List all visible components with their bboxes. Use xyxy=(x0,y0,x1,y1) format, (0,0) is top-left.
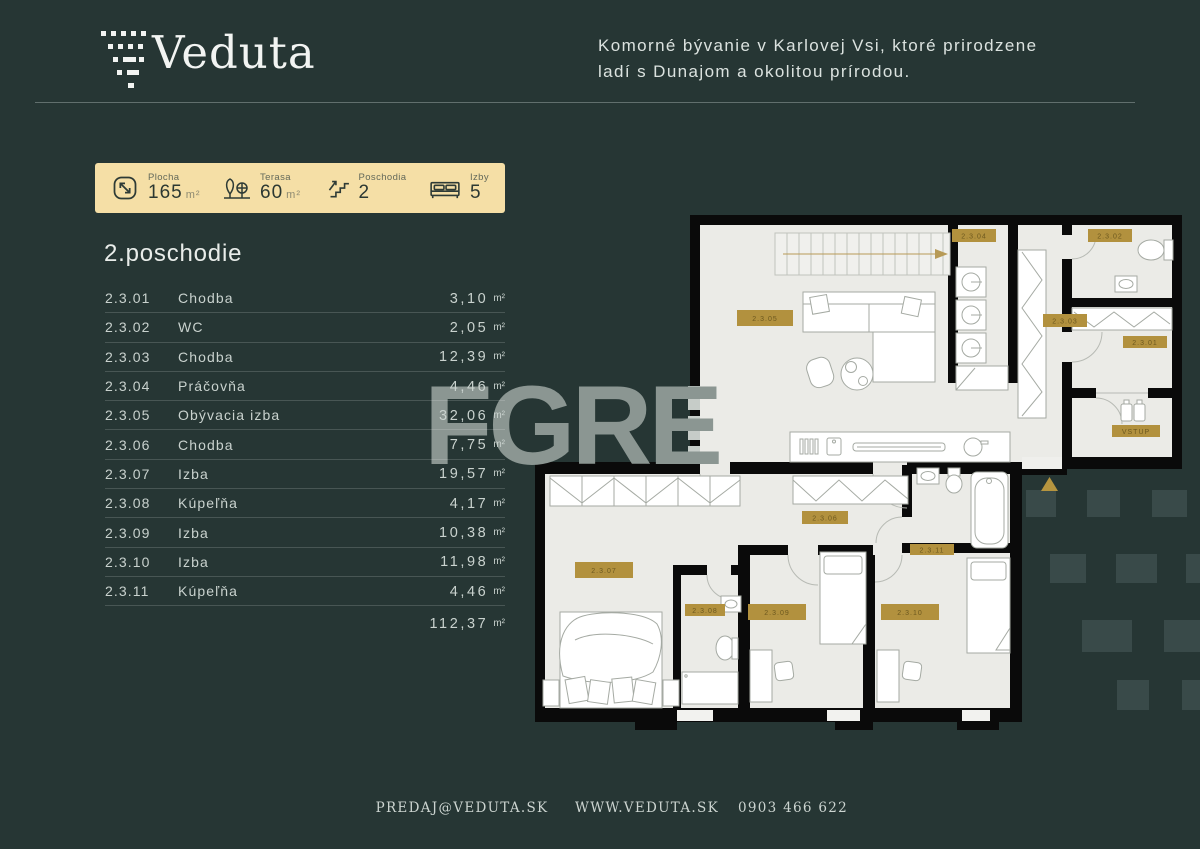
table-row: 2.3.03Chodba12,39m² xyxy=(105,343,505,372)
double-bed xyxy=(543,612,679,708)
entrance-label: VSTUP xyxy=(1122,429,1150,436)
room-label: 2.3.11 xyxy=(920,548,945,555)
stat-izby: Izby 5 xyxy=(429,172,489,205)
room-label: 2.3.10 xyxy=(897,610,922,617)
table-row: 2.3.09Izba10,38m² xyxy=(105,518,505,547)
stat-value: 60m² xyxy=(260,183,301,205)
kitchen-island xyxy=(790,432,1010,462)
area-icon xyxy=(111,174,139,202)
room-label: 2.3.06 xyxy=(812,516,837,523)
stat-value: 165m² xyxy=(148,183,201,205)
footer-website[interactable]: WWW.VEDUTA.SK xyxy=(575,800,719,816)
table-row: 2.3.05Obývacia izba32,06m² xyxy=(105,401,505,430)
table-row: 2.3.06Chodba7,75m² xyxy=(105,430,505,459)
table-row: 2.3.11Kúpeľňa4,46m² xyxy=(105,577,505,606)
stats-card: Plocha 165m² Terasa 60m² Poschodia 2 xyxy=(95,163,505,213)
brand-name: Veduta xyxy=(152,26,316,79)
trees-icon xyxy=(223,175,251,201)
table-row: 2.3.04Práčovňa4,46m² xyxy=(105,372,505,401)
room-label: 2.3.05 xyxy=(752,316,777,323)
room-label: 2.3.07 xyxy=(591,568,616,575)
stat-terasa: Terasa 60m² xyxy=(223,172,301,205)
table-row: 2.3.10Izba11,98m² xyxy=(105,548,505,577)
veduta-logo-icon xyxy=(100,31,148,89)
tagline-line1: Komorné bývanie v Karlovej Vsi, ktoré pr… xyxy=(598,33,1038,59)
room-label: 2.3.02 xyxy=(1097,234,1122,241)
stat-poschodia: Poschodia 2 xyxy=(324,172,407,205)
stairs xyxy=(775,233,950,275)
entrance-arrow xyxy=(1041,477,1058,491)
room-label: 2.3.01 xyxy=(1132,340,1157,347)
footer-email[interactable]: PREDAJ@VEDUTA.SK xyxy=(376,800,549,816)
tagline: Komorné bývanie v Karlovej Vsi, ktoré pr… xyxy=(598,33,1038,85)
room-table: 2.3.01Chodba3,10m² 2.3.02WC2,05m² 2.3.03… xyxy=(105,284,505,640)
corridor-closet xyxy=(1018,250,1046,418)
stairs-icon xyxy=(324,175,350,201)
table-row: 2.3.02WC2,05m² xyxy=(105,313,505,342)
bed-icon xyxy=(429,176,461,200)
tagline-line2: ladí s Dunajom a okolitou prírodou. xyxy=(598,59,1038,85)
hallway-closet xyxy=(793,476,908,504)
table-row: 2.3.01Chodba3,10m² xyxy=(105,284,505,313)
room-label: 2.3.09 xyxy=(764,610,789,617)
stat-plocha: Plocha 165m² xyxy=(111,172,201,205)
stat-value: 5 xyxy=(470,183,489,205)
stat-value: 2 xyxy=(359,183,407,205)
table-total-row: 112,37m² xyxy=(105,606,505,640)
footer-phone[interactable]: 0903 466 622 xyxy=(738,800,848,816)
room-label: 2.3.03 xyxy=(1052,319,1077,326)
table-row: 2.3.07Izba19,57m² xyxy=(105,460,505,489)
table-row: 2.3.08Kúpeľňa4,17m² xyxy=(105,489,505,518)
room-label: 2.3.04 xyxy=(961,234,986,241)
header-divider xyxy=(35,102,1135,103)
page-title: 2.poschodie xyxy=(104,240,242,268)
room-label: 2.3.08 xyxy=(692,608,717,615)
